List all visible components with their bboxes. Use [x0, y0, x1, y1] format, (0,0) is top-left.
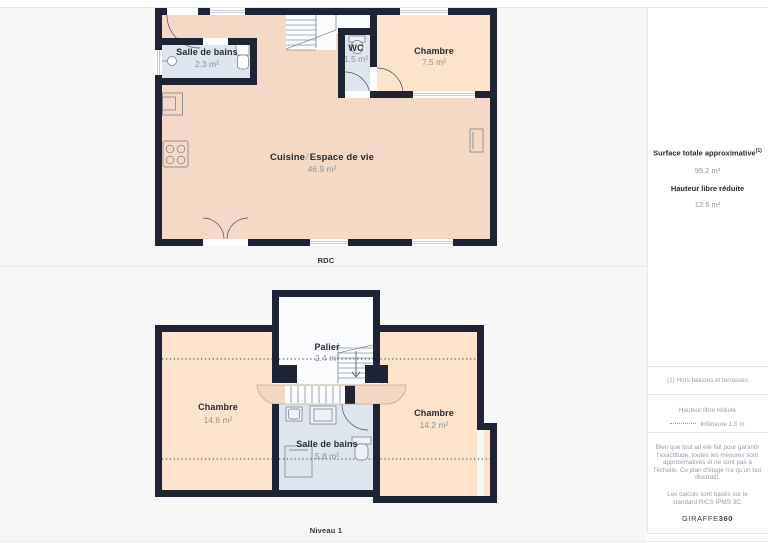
surface-total-title: Surface totale approximative(1)	[647, 148, 768, 158]
footnote-marker: (1)	[756, 148, 762, 154]
sidebar-divider	[647, 366, 768, 367]
n1-landing-band	[257, 385, 406, 404]
surface-total-value: 95.2 m²	[647, 166, 768, 175]
reduced-height-value: 12.6 m²	[647, 200, 768, 209]
rdc-floorplan	[155, 8, 497, 246]
niveau1-floor-label: Niveau 1	[310, 526, 342, 535]
niveau1-floorplan	[155, 290, 497, 503]
disclaimer-text: Bien que tout ait été fait pour garantir…	[653, 444, 762, 482]
rdc-wc-label: WC	[348, 43, 363, 53]
rdc-floor-label: RDC	[318, 256, 335, 265]
sidebar-divider	[647, 394, 768, 395]
rdc-salle-de-bains-area: 2.3 m²	[195, 59, 219, 69]
sidebar-divider	[647, 432, 768, 433]
rdc-chambre-label: Chambre	[414, 46, 454, 56]
rdc-cuisine-area: 46.9 m²	[308, 164, 337, 174]
sidebar-left-border	[647, 7, 648, 534]
floorplans-drawing	[0, 0, 647, 543]
n1-chambre-gauche-label: Chambre	[198, 402, 238, 412]
toilet-icon	[236, 44, 249, 55]
legend-reduced-height-row: Inférieure 1.5 m	[647, 421, 768, 428]
n1-chambre-droite-label: Chambre	[414, 408, 454, 418]
giraffe360-logo: GIRAFFE360	[647, 514, 768, 523]
reduced-height-title: Hauteur libre réduite	[647, 184, 768, 193]
rdc-salle-de-bains-label: Salle de bains	[176, 47, 237, 57]
sink-icon	[168, 57, 177, 66]
rdc-chambre-area: 7.5 m²	[422, 57, 446, 67]
n1-chambre-droite-area: 14.2 m²	[420, 420, 449, 430]
dotted-line-icon	[670, 423, 696, 425]
sidebar-bottom-border	[647, 533, 768, 534]
n1-palier-area: 2.4 m²	[315, 353, 339, 363]
n1-palier-label: Palier	[314, 342, 339, 352]
legend-reduced-height-title: Hauteur libre réduite	[647, 407, 768, 414]
n1-chambre-gauche-area: 14.6 m²	[204, 415, 233, 425]
n1-salle-de-bains-area: 5.8 m²	[315, 451, 339, 461]
standard-note-text: Les calculs sont basés sur le standard R…	[657, 491, 758, 506]
floorplan-page: Salle de bains 2.3 m² WC 1.5 m² Chambre …	[0, 0, 768, 543]
n1-salle-de-bains-label: Salle de bains	[296, 439, 357, 449]
stairwell-opening	[285, 386, 345, 404]
rdc-cuisine-label: Cuisine/Espace de vie	[270, 152, 374, 163]
rdc-wc-area: 1.5 m²	[344, 54, 368, 64]
balconies-footnote: (1) Hors balcons et terrasses	[647, 377, 768, 384]
